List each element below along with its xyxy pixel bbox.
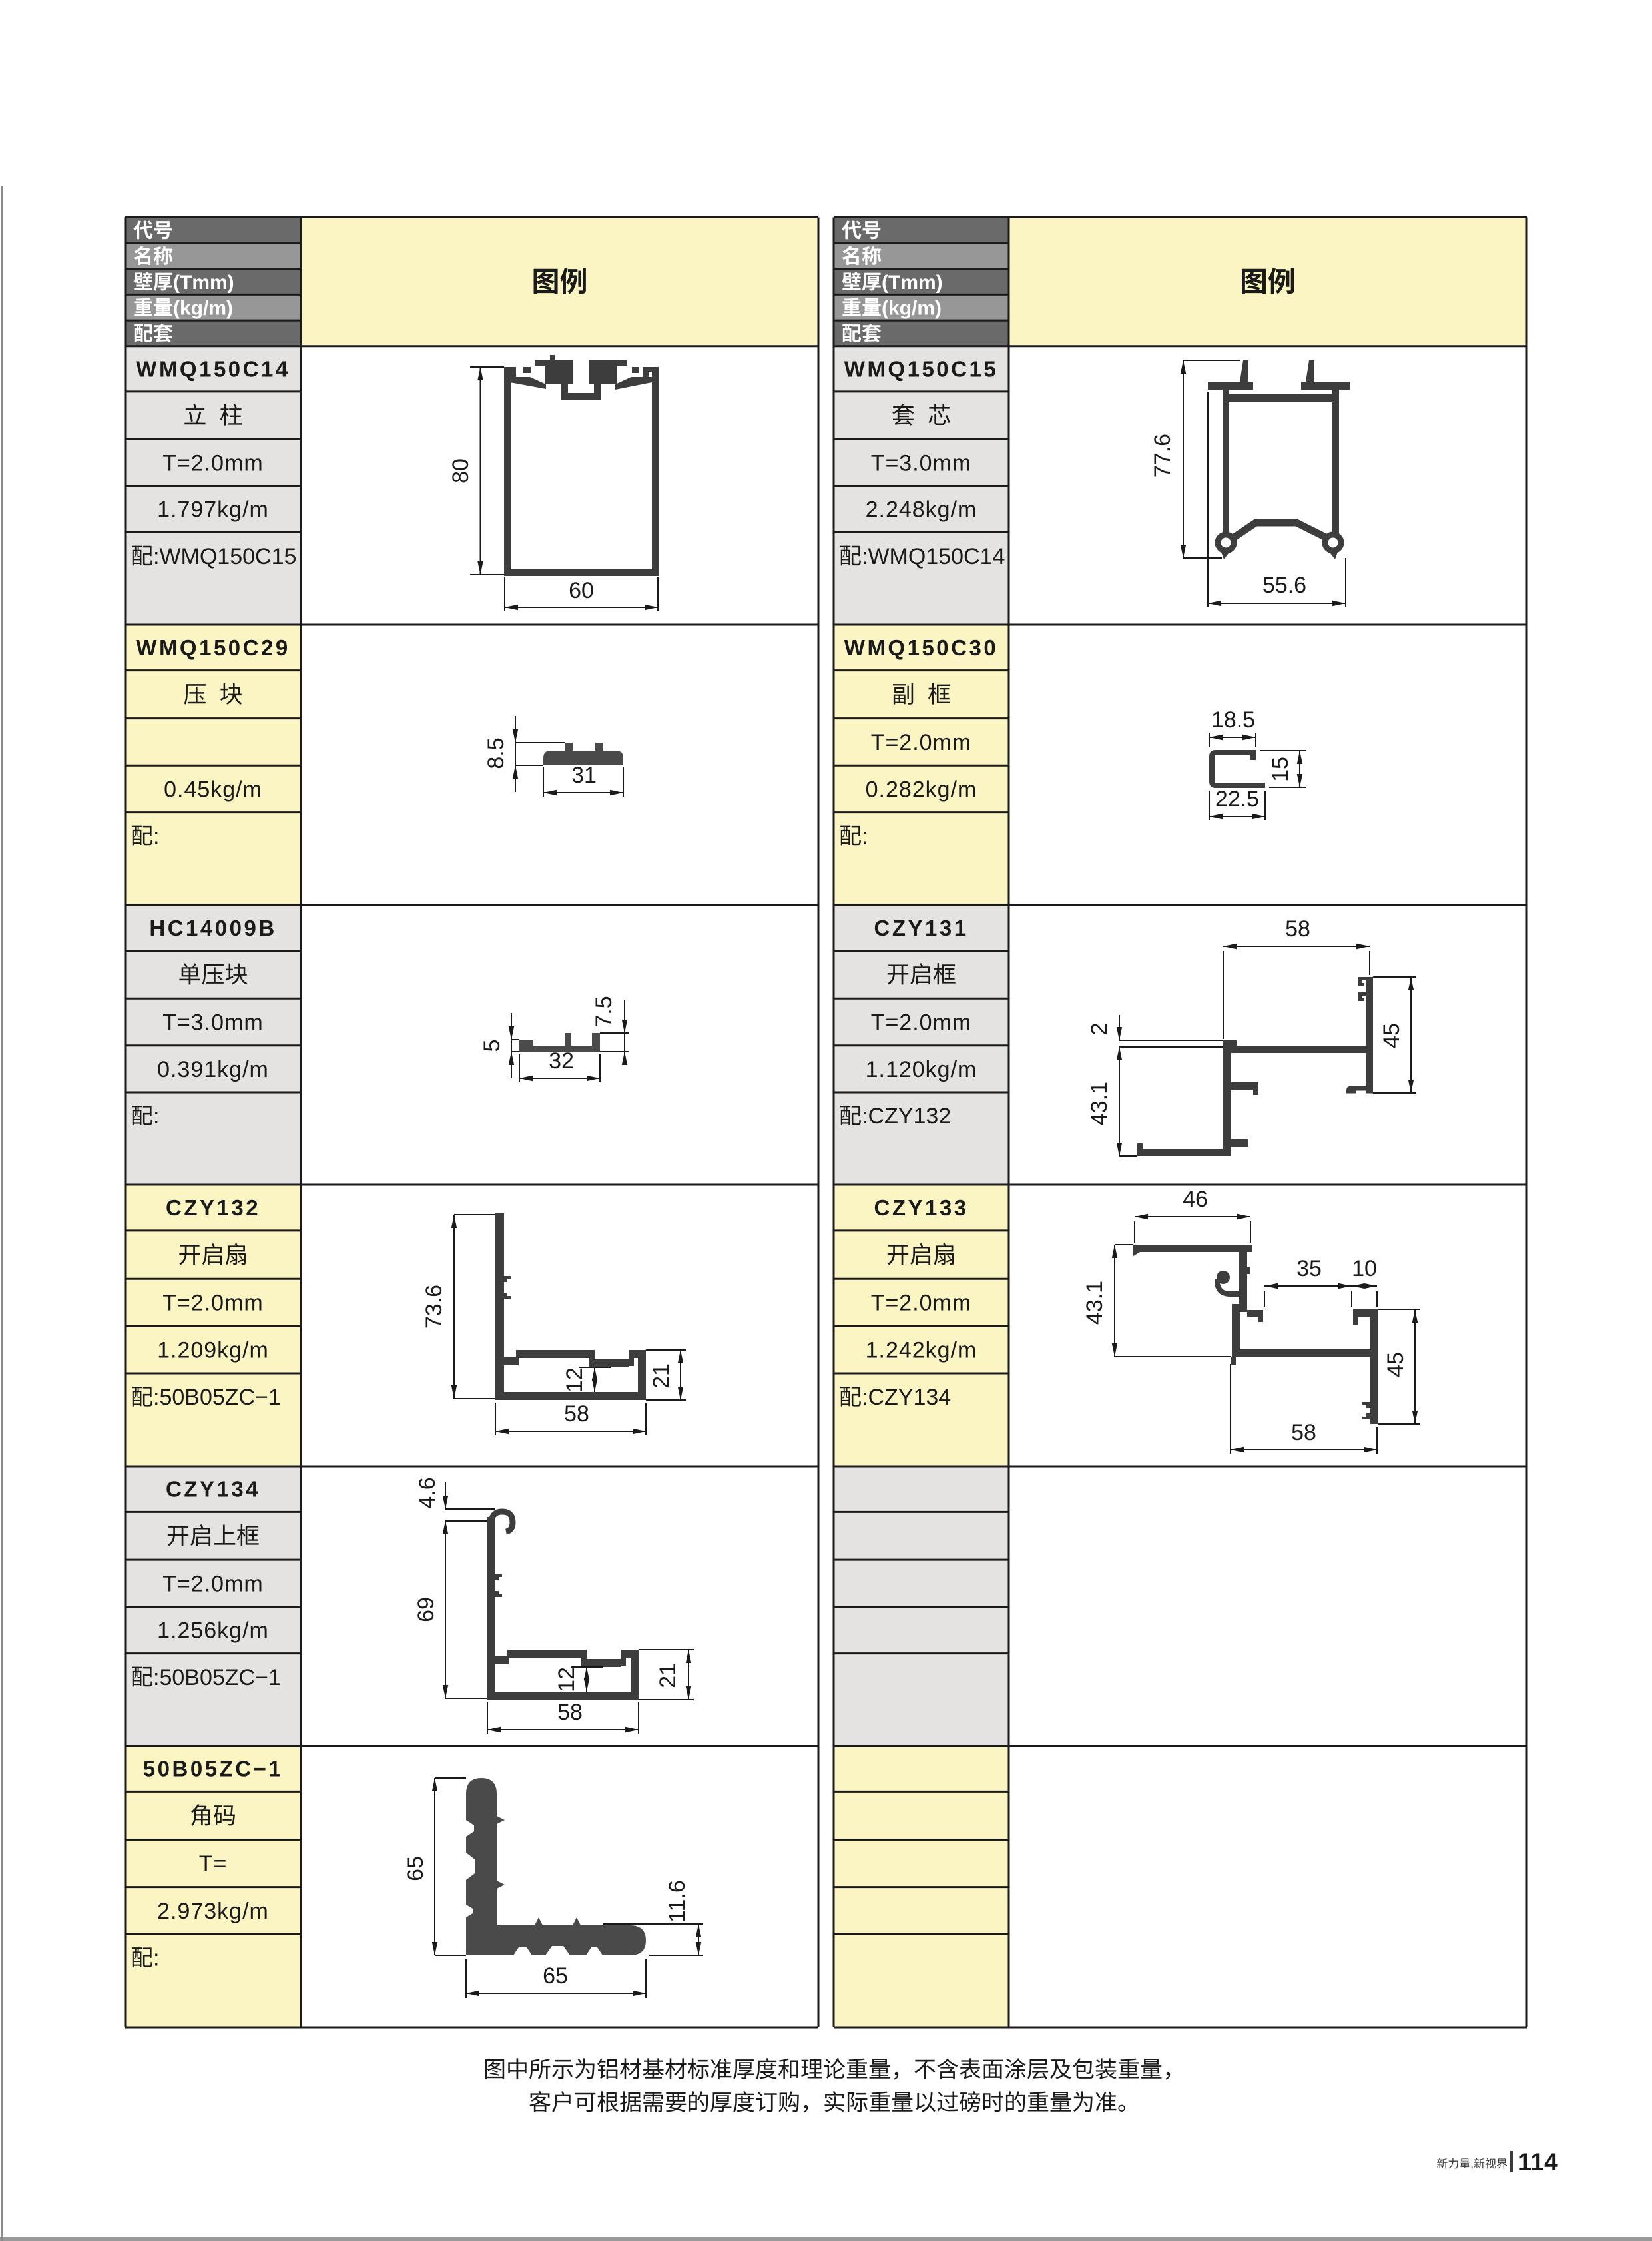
svg-text:32: 32 [549,1048,574,1074]
svg-text:0.45kg/m: 0.45kg/m [164,777,262,802]
svg-text:58: 58 [1291,1420,1316,1445]
svg-text::50B05ZC−1: :50B05ZC−1 [153,1385,281,1410]
svg-text::WMQ150C15: :WMQ150C15 [153,544,296,569]
svg-text:CZY134: CZY134 [166,1477,260,1502]
svg-text:12: 12 [554,1667,579,1692]
svg-text:T=: T= [199,1851,228,1877]
svg-text:T=2.0mm: T=2.0mm [162,1571,264,1596]
svg-text::: : [153,1104,159,1129]
svg-text:1.209kg/m: 1.209kg/m [157,1338,269,1363]
svg-text:0.391kg/m: 0.391kg/m [157,1057,269,1082]
svg-text:WMQ150C14: WMQ150C14 [136,356,290,381]
svg-text:(kg/m): (kg/m) [173,298,233,320]
svg-text:(Tmm): (Tmm) [882,272,943,294]
svg-text:11.6: 11.6 [665,1880,690,1923]
svg-text:21: 21 [655,1663,681,1688]
svg-text:WMQ150C30: WMQ150C30 [844,635,998,660]
svg-text:58: 58 [557,1700,583,1725]
svg-text:T=2.0mm: T=2.0mm [871,730,972,755]
svg-text:2: 2 [1087,1023,1112,1036]
svg-text:T=2.0mm: T=2.0mm [162,450,264,476]
svg-text:1.120kg/m: 1.120kg/m [866,1057,977,1082]
svg-text::CZY132: :CZY132 [862,1104,951,1129]
svg-text:WMQ150C15: WMQ150C15 [844,356,998,381]
svg-text:T=2.0mm: T=2.0mm [162,1291,264,1316]
svg-text:7.5: 7.5 [591,996,617,1027]
svg-text::CZY134: :CZY134 [862,1385,951,1410]
svg-text:65: 65 [403,1856,428,1881]
svg-text:CZY131: CZY131 [874,916,969,940]
svg-text::: : [153,1945,159,1971]
svg-text:43.1: 43.1 [1087,1082,1112,1125]
svg-text::: : [153,824,159,849]
svg-text:5: 5 [479,1040,505,1052]
svg-text:77.6: 77.6 [1150,434,1175,478]
svg-text:T=2.0mm: T=2.0mm [871,1291,972,1316]
svg-text:58: 58 [564,1401,589,1427]
svg-text:CZY132: CZY132 [166,1195,260,1220]
svg-text:18.5: 18.5 [1211,707,1255,733]
svg-text:45: 45 [1379,1023,1404,1048]
svg-text:T=3.0mm: T=3.0mm [162,1010,264,1036]
svg-text:35: 35 [1296,1256,1322,1281]
svg-text:46: 46 [1183,1187,1208,1212]
svg-text:65: 65 [543,1963,568,1989]
svg-text:8.5: 8.5 [483,737,509,769]
svg-text:43.1: 43.1 [1082,1281,1107,1325]
svg-text:60: 60 [569,578,594,603]
svg-text:22.5: 22.5 [1215,787,1259,812]
svg-text:73.6: 73.6 [421,1285,447,1329]
svg-text:69: 69 [413,1597,439,1622]
svg-text:12: 12 [562,1367,587,1393]
svg-text:0.282kg/m: 0.282kg/m [866,777,977,802]
svg-text:WMQ150C29: WMQ150C29 [136,635,290,660]
svg-text:,: , [1470,2158,1474,2170]
svg-text::: : [862,824,868,849]
svg-text:CZY133: CZY133 [874,1195,969,1220]
svg-text:21: 21 [649,1363,674,1389]
svg-text:1.256kg/m: 1.256kg/m [157,1618,269,1644]
svg-text:15: 15 [1268,757,1293,782]
svg-text::WMQ150C14: :WMQ150C14 [862,544,1005,569]
svg-text:T=3.0mm: T=3.0mm [871,450,972,476]
svg-text:(kg/m): (kg/m) [882,298,942,320]
svg-text:55.6: 55.6 [1262,573,1306,598]
svg-text:114: 114 [1518,2148,1558,2176]
svg-text:2.248kg/m: 2.248kg/m [866,497,977,523]
svg-text:T=2.0mm: T=2.0mm [871,1010,972,1036]
svg-text:1.242kg/m: 1.242kg/m [866,1338,977,1363]
svg-text:4.6: 4.6 [415,1477,440,1508]
svg-text:31: 31 [571,763,597,788]
svg-text:2.973kg/m: 2.973kg/m [157,1899,269,1924]
svg-text:HC14009B: HC14009B [149,916,276,940]
svg-text::50B05ZC−1: :50B05ZC−1 [153,1665,281,1690]
svg-text:(Tmm): (Tmm) [173,272,234,294]
svg-text:80: 80 [448,458,473,483]
svg-text:45: 45 [1383,1352,1408,1377]
svg-text:50B05ZC−1: 50B05ZC−1 [143,1757,283,1781]
svg-text:1.797kg/m: 1.797kg/m [157,497,269,523]
svg-text:10: 10 [1352,1256,1377,1281]
svg-text:58: 58 [1285,916,1310,942]
